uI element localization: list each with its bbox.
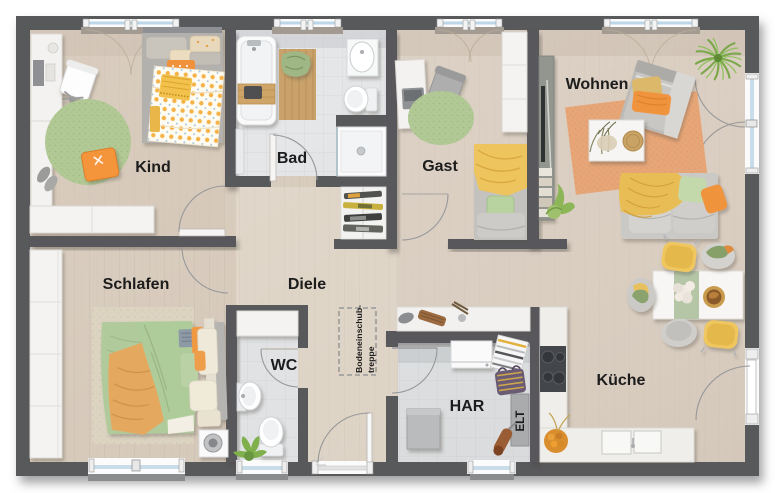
svg-text:HAR: HAR bbox=[450, 398, 485, 415]
svg-text:treppe: treppe bbox=[366, 346, 376, 373]
svg-text:WC: WC bbox=[271, 357, 298, 374]
svg-text:Gast: Gast bbox=[422, 158, 458, 175]
svg-text:Wohnen: Wohnen bbox=[566, 76, 629, 93]
svg-text:Bodeneinschub-: Bodeneinschub- bbox=[354, 305, 364, 373]
svg-text:Schlafen: Schlafen bbox=[103, 276, 170, 293]
svg-text:Küche: Küche bbox=[597, 372, 646, 389]
svg-text:ELT: ELT bbox=[515, 411, 527, 432]
svg-text:Bad: Bad bbox=[277, 150, 307, 167]
svg-text:Diele: Diele bbox=[288, 276, 326, 293]
svg-text:Kind: Kind bbox=[135, 159, 171, 176]
